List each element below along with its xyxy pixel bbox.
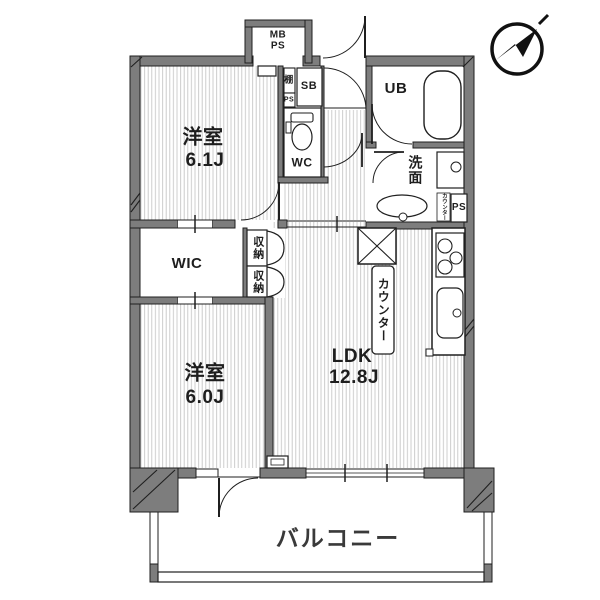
ldk-name-label: LDK	[332, 347, 373, 367]
meter-box-label: MB PS	[270, 31, 287, 52]
burner-3	[438, 260, 452, 274]
balcony-wall-left	[150, 512, 158, 564]
meter-box-wall-right	[305, 20, 312, 63]
balcony-door-arc	[219, 478, 258, 517]
wall-bath-bottom-a	[366, 142, 376, 148]
toilet-tank	[291, 113, 313, 122]
wic-label: WIC	[172, 256, 203, 272]
wc-label: WC	[292, 157, 313, 170]
bedroom2-size-label: 6.0J	[186, 388, 225, 408]
compass-north-tick	[539, 15, 548, 24]
wall-bottom-a	[178, 468, 196, 478]
ub-label: UB	[385, 81, 408, 97]
wall-left	[130, 56, 140, 468]
ps-label: PS	[452, 203, 466, 214]
wall-end-box-inner	[271, 459, 284, 465]
sink-faucet	[453, 309, 461, 317]
hall-upper-floor	[324, 110, 366, 183]
bedroom2-name-label: 洋室	[185, 364, 226, 385]
shelf-label: 棚	[284, 75, 294, 84]
shoe-box-label: SB	[301, 81, 317, 93]
wall-wic-bottom-a	[130, 297, 178, 304]
toilet-handle	[286, 122, 291, 133]
wall-bottom-c	[424, 468, 464, 478]
bedroom1-size-label: 6.1J	[186, 151, 225, 171]
burner-2	[450, 252, 462, 264]
storage-upper-label: 収納	[251, 236, 263, 260]
balcony-foot-right	[484, 564, 492, 582]
counter-lip	[426, 349, 433, 356]
meter-box-wall-top	[245, 20, 312, 27]
bedroom2-floor	[140, 304, 265, 468]
balcony-railing	[158, 572, 484, 582]
compass-needle	[496, 29, 537, 60]
counter-label: カウンター	[377, 278, 390, 343]
entry-door-arc	[323, 16, 365, 58]
switch-box	[258, 66, 276, 76]
burner-1	[438, 239, 452, 253]
wall-wic-bottom-b	[212, 297, 265, 304]
wall-bath-bottom-b	[413, 142, 464, 148]
wall-wc-bottom	[278, 177, 328, 183]
balcony-label: バルコニー	[276, 526, 401, 550]
window-bedroom2	[196, 469, 218, 477]
counter-small-label: カウンター	[440, 193, 446, 221]
balcony-foot-left	[150, 564, 158, 582]
ldk-size-label: 12.8J	[329, 368, 379, 388]
wall-wc-left	[278, 66, 283, 183]
wall-bottom-b	[260, 468, 306, 478]
wall-mid-c	[278, 220, 287, 228]
wash-basin-drain	[399, 213, 407, 221]
wall-wic-right	[243, 228, 247, 298]
wall-top-right	[366, 56, 474, 66]
bathtub	[424, 71, 461, 139]
ps-small-label: PS	[284, 96, 294, 103]
balcony-wall-right	[484, 512, 492, 564]
wall-mid-b	[212, 220, 235, 228]
washing-machine-faucet	[451, 162, 461, 172]
washroom-label: 洗面	[408, 155, 423, 185]
floor-plan: 洋室 6.1J 洋室 6.0J LDK 12.8J WIC WC UB 洗面 バ…	[0, 0, 600, 600]
storage-lower-label: 収納	[251, 270, 263, 294]
compass-icon	[492, 15, 548, 74]
toilet-bowl	[292, 124, 312, 150]
wall-top-left	[130, 56, 253, 66]
hall-lower-floor	[283, 183, 366, 220]
bedroom1-name-label: 洋室	[183, 128, 224, 149]
wall-partition-bedroom2-ldk	[265, 297, 273, 468]
wall-mid-a	[130, 220, 178, 228]
